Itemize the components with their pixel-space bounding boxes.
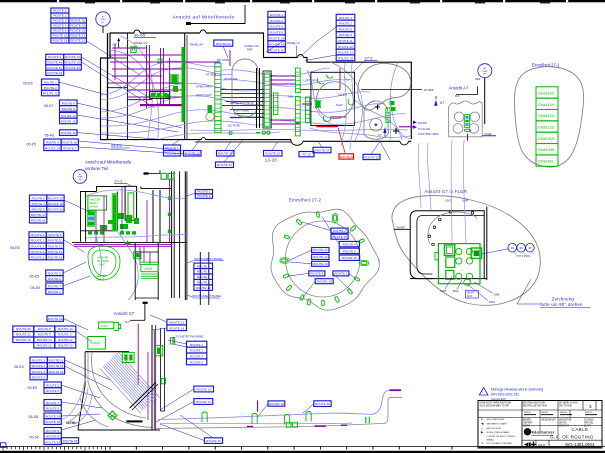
svg-text:ROUTE 18: ROUTE 18 [45,440,60,444]
svg-text:27-2: 27-2 [365,55,374,60]
svg-text:PANEL KP: PANEL KP [190,43,204,47]
svg-text:HOFTLIGHT: HOFTLIGHT [196,93,212,97]
svg-text:ROUTE 16: ROUTE 16 [61,131,76,135]
svg-text:ROUTE 23: ROUTE 23 [338,51,353,55]
svg-text:ROUTE 18: ROUTE 18 [269,48,284,52]
svg-text:Einzelheit 27-2: Einzelheit 27-2 [289,198,322,203]
svg-text:ROUTE 7: ROUTE 7 [48,284,61,288]
svg-text:ROUTE 19: ROUTE 19 [269,37,284,41]
svg-text:CHA7: CHA7 [101,324,109,328]
svg-text:ROUTE 10: ROUTE 10 [58,327,73,331]
svg-text:TO INSTRT PNL BRKE: TO INSTRT PNL BRKE [175,334,203,338]
svg-text:RELAY: RELAY [90,201,99,205]
svg-text:Ansicht auf Mittelkonsole: Ansicht auf Mittelkonsole [173,14,235,19]
svg-text:Ansicht C7: Ansicht C7 [114,311,135,316]
svg-text:STAR: STAR [77,176,83,179]
svg-text:ROUTE 5: ROUTE 5 [46,383,59,387]
svg-text:ROUTE 8: ROUTE 8 [62,101,75,105]
svg-text:40: 40 [528,246,532,250]
svg-text:06-E5: 06-E5 [31,286,41,290]
svg-text:TYP 6 PINS: TYP 6 PINS [516,254,530,258]
svg-text:ROUTE 5: ROUTE 5 [32,196,45,200]
svg-text:ROUTE 17: ROUTE 17 [58,333,73,337]
svg-text:ROUTE 1: ROUTE 1 [197,190,210,194]
svg-text:ROUTE 15: ROUTE 15 [65,61,80,65]
svg-text:ROUTE 4: ROUTE 4 [53,24,66,28]
svg-text:20417: 20417 [538,443,546,447]
svg-text:VB REF: VB REF [397,226,406,229]
svg-text:CABLE: CABLE [572,427,589,432]
svg-text:Cha1192: Cha1192 [538,90,555,95]
svg-text:ROUTE 99: ROUTE 99 [16,327,31,331]
svg-text:ROUTE 8: ROUTE 8 [46,141,59,145]
svg-text:ROUTE 4: ROUTE 4 [32,202,45,206]
svg-text:ROUTE 15: ROUTE 15 [218,152,233,156]
svg-text:06-D6: 06-D6 [29,415,39,419]
svg-text:!: ! [482,390,483,394]
svg-text:ZCHNGS: ZCHNGS [584,420,594,422]
svg-text:ROUTE 18: ROUTE 18 [338,45,353,49]
svg-text:ROUTE 13: ROUTE 13 [65,55,80,59]
svg-text:ROUTE 2: ROUTE 2 [190,349,203,353]
svg-text:ROUTE 1: ROUTE 1 [190,343,203,347]
svg-text:ROUTE 40: ROUTE 40 [48,208,63,212]
svg-text:ARTIKEL: ARTIKEL [584,422,594,425]
svg-text:HEATER: HEATER [96,274,106,278]
svg-text:ROUTE 13: ROUTE 13 [196,388,211,392]
svg-text:FLH: FLH [125,321,130,324]
svg-text:ROUTE 14: ROUTE 14 [45,414,60,418]
svg-text:ROUTE 2: ROUTE 2 [165,152,178,156]
svg-text:Cha1411: Cha1411 [538,159,555,164]
svg-text:WG-1381.0601: WG-1381.0601 [565,442,595,447]
svg-text:G.A. OF ROUTING: G.A. OF ROUTING [550,434,594,439]
svg-text:ROUTE 9: ROUTE 9 [38,333,51,337]
svg-text:ROUTE 9: ROUTE 9 [32,208,45,212]
svg-text:BESTEVLNETON NUR: BESTEVLNETON NUR [523,405,547,407]
svg-text:ROUTE 2: ROUTE 2 [53,14,66,18]
svg-text:REF NOTE ML: REF NOTE ML [487,428,502,430]
svg-text:ROUTE 64: ROUTE 64 [48,317,63,321]
svg-text:DIN-1502-0001-012: DIN-1502-0001-012 [491,392,519,396]
svg-text:BRAID): BRAID) [487,438,495,441]
svg-text:ROUTE 4: ROUTE 4 [339,33,352,37]
svg-text:DO STBD: DO STBD [217,58,229,62]
svg-text:ROUTE 22: ROUTE 22 [70,39,85,43]
svg-text:FLIR: FLIR [467,295,472,298]
svg-text:ROUTE 44: ROUTE 44 [47,71,62,75]
svg-text:27-1: 27-1 [114,179,123,184]
svg-text:MASTER: MASTER [98,256,109,260]
svg-text:ROUTE 3: ROUTE 3 [46,407,59,411]
svg-text:ROUTE 16: ROUTE 16 [185,152,200,156]
svg-text:34: 34 [511,246,515,250]
svg-text:ROUTE 7: ROUTE 7 [46,401,59,405]
svg-text:Cha1410: Cha1410 [538,136,555,141]
svg-text:WERKST: WERKST [559,425,569,427]
svg-text:INSTRUMENT PANEL: INSTRUMENT PANEL [194,257,223,261]
svg-text:ALLE WSSNAHMEN TO WF: ALLE WSSNAHMEN TO WF [480,404,510,407]
svg-text:ROUTE 6: ROUTE 6 [46,389,59,393]
svg-text:06-F2: 06-F2 [44,104,53,108]
svg-text:ROUTE 4: ROUTE 4 [32,376,45,380]
svg-text:ROUTE 1: ROUTE 1 [334,272,347,276]
svg-text:ROUTE 18: ROUTE 18 [48,202,63,206]
svg-text:ROUTE 8: ROUTE 8 [38,327,51,331]
svg-text:Montage Hinweise wird in Zeich: Montage Hinweise wird in Zeichnung [491,387,543,391]
svg-text:ROUTE 18: ROUTE 18 [364,155,379,159]
svg-text:FLIR: FLIR [336,103,343,107]
svg-text:Ansicht auf Mittelkonsole: Ansicht auf Mittelkonsole [85,160,132,165]
svg-text:ROUTE 8: ROUTE 8 [339,27,352,31]
svg-text:ROUTE 14: ROUTE 14 [196,400,211,404]
svg-text:ROUTE 16: ROUTE 16 [342,256,357,260]
svg-text:CONTRL OF SPEC CONTRL: CONTRL OF SPEC CONTRL [487,436,517,438]
svg-text:STAR: STAR [482,70,488,73]
svg-text:ANTER ROUTE W: ANTER ROUTE W [230,101,254,105]
svg-text:ROUTE 43: ROUTE 43 [31,213,46,217]
svg-text:ROUTE 4: ROUTE 4 [31,250,44,254]
svg-text:ROUTE 2: ROUTE 2 [44,86,57,90]
svg-text:ROUTE 42: ROUTE 42 [47,66,62,70]
svg-text:ROUTE 16: ROUTE 16 [48,256,63,260]
svg-text:STBD ARMT: STBD ARMT [196,85,212,89]
svg-text:COMMS: COMMS [230,116,241,120]
svg-text:ROUTE 18: ROUTE 18 [317,279,332,283]
svg-text:ROUTE 15: ROUTE 15 [70,24,85,28]
svg-text:W REF: W REF [484,133,492,136]
svg-text:BLOWER: BLOWER [98,259,109,263]
svg-text:ROUTE 5: ROUTE 5 [48,271,61,275]
svg-text:ROUTE 15: ROUTE 15 [49,364,64,368]
svg-text:ROUTE 34: ROUTE 34 [217,163,232,167]
svg-text:FLH: FLH [455,95,460,98]
svg-text:ROUTE 6: ROUTE 6 [48,277,61,281]
svg-text:vorderer Teil: vorderer Teil [85,166,108,171]
svg-text:ROUTE 16: ROUTE 16 [49,370,64,374]
svg-text:GEPRUF: GEPRUF [523,423,533,425]
svg-text:ROUTE 14: ROUTE 14 [45,146,60,150]
svg-text:ROUTE 16: ROUTE 16 [206,439,221,443]
svg-text:5068: 5068 [440,289,446,293]
svg-text:ROUTE 18: ROUTE 18 [53,39,68,43]
svg-text:REF: REF [476,78,481,81]
svg-text:ROUTE 12: ROUTE 12 [16,333,31,337]
svg-text:MILL/LINED SIDE: MILL/LINED SIDE [487,419,505,421]
svg-text:ROUTE 22: ROUTE 22 [313,248,328,252]
svg-text:ROUTE 1: ROUTE 1 [44,80,57,84]
svg-text:ROUTE 8: ROUTE 8 [310,272,323,276]
svg-text:ROUTE 16: ROUTE 16 [70,19,85,23]
svg-text:ROUTE 20: ROUTE 20 [65,66,80,70]
svg-text:ROUTE 14: ROUTE 14 [48,250,63,254]
svg-text:ROUTE 9: ROUTE 9 [48,233,61,237]
svg-text:GEZEICHNET: GEZEICHNET [541,420,556,422]
svg-text:05-F5: 05-F5 [27,143,36,147]
svg-text:ATTITUDE: ATTITUDE [224,77,238,81]
svg-text:PANEL CV: PANEL CV [134,41,148,45]
svg-text:5062: 5062 [453,289,459,293]
svg-text:W REF: W REF [424,88,434,92]
svg-text:ROUTE 22: ROUTE 22 [58,338,73,342]
svg-text:ROUTE 9: ROUTE 9 [197,275,210,279]
svg-text:05-E6: 05-E6 [23,82,33,86]
svg-text:15-02: 15-02 [144,267,152,271]
svg-text:INSTRUMENT PANEL: INSTRUMENT PANEL [193,294,222,298]
svg-text:ROUTE 3: ROUTE 3 [32,370,45,374]
svg-text:CHA15: CHA15 [96,278,105,282]
svg-text:ROUTE 10: ROUTE 10 [265,152,280,156]
svg-text:ROUTE 18: ROUTE 18 [63,439,78,443]
svg-text:ROUTE 2: ROUTE 2 [339,22,352,26]
svg-text:CHA7: CHA7 [99,263,106,267]
svg-text:PORT ARMT: PORT ARMT [234,109,251,113]
svg-text:bitte um 90° drehen: bitte um 90° drehen [541,302,584,307]
svg-text:ROUTE 9: ROUTE 9 [270,25,283,29]
svg-text:06-E5: 06-E5 [14,365,24,369]
svg-text:MASTER: MASTER [90,198,101,202]
svg-text:ROUTE 41: ROUTE 41 [31,219,46,223]
svg-text:ROUTE 1: ROUTE 1 [270,13,283,17]
svg-text:DC PORT: DC PORT [228,123,241,127]
svg-text:ROUTE 40: ROUTE 40 [47,61,62,65]
svg-text:ROUTE 10: ROUTE 10 [48,239,63,243]
svg-text:ROUTE 14: ROUTE 14 [169,326,184,330]
svg-text:5067: 5067 [445,198,451,202]
svg-text:05-E5: 05-E5 [30,275,40,279]
svg-text:DATUM: DATUM [585,411,592,414]
svg-text:DATUM: DATUM [541,411,548,414]
svg-text:ROUTE 1: ROUTE 1 [32,358,45,362]
svg-text:HOW KONT OHNE ANDTOSN: HOW KONT OHNE ANDTOSN [480,401,512,404]
svg-text:NT: NT [440,101,444,105]
svg-text:ROUTE 5: ROUTE 5 [31,256,44,260]
svg-text:WT CLR AND COM PNRL: WT CLR AND COM PNRL [487,442,513,445]
svg-text:ROUTE 11: ROUTE 11 [338,39,353,43]
svg-text:SEE PARTS CHART: SEE PARTS CHART [487,422,508,425]
svg-text:ROUTE 13: ROUTE 13 [169,321,184,325]
svg-text:GUIDE (TRUSS PANEL: GUIDE (TRUSS PANEL [487,431,511,434]
svg-text:A7: A7 [378,133,382,137]
svg-text:Ansicht G7 in FLGR: Ansicht G7 in FLGR [425,189,468,194]
svg-text:REF: REF [247,48,253,52]
svg-text:ROUTE 6: ROUTE 6 [270,31,283,35]
svg-text:ROUTE 10: ROUTE 10 [53,34,68,38]
svg-text:05-E5: 05-E5 [28,386,38,390]
svg-text:ROUTE 3: ROUTE 3 [190,355,203,359]
svg-text:ROUTE 3: ROUTE 3 [63,146,76,150]
svg-text:AT GEN: AT GEN [206,73,216,77]
svg-text:NORM: NORM [523,425,530,427]
svg-text:ROUTE 5: ROUTE 5 [197,264,210,268]
svg-text:PANEL CL: PANEL CL [287,41,301,45]
svg-text:ROUTE 4: ROUTE 4 [190,361,203,365]
svg-text:ROUTE 4: ROUTE 4 [197,281,210,285]
svg-text:ROUTE 18: ROUTE 18 [269,402,284,406]
svg-text:REF REF: REF REF [66,422,77,425]
svg-text:ROUTE 13: ROUTE 13 [49,358,64,362]
svg-text:ROUTE 9: ROUTE 9 [62,107,75,111]
svg-text:06-E6: 06-E6 [10,246,20,250]
svg-text:3: 3 [589,404,592,409]
svg-text:DATUM: DATUM [560,411,567,414]
svg-text:ROUTE 12: ROUTE 12 [313,255,328,259]
svg-text:ROUTE 5: ROUTE 5 [340,155,353,159]
svg-text:ROUTE 2: ROUTE 2 [333,229,346,233]
svg-text:CHA10: CHA10 [91,341,101,345]
svg-text:CHA19: CHA19 [90,205,99,209]
svg-text:DETAIL: DETAIL [559,422,568,425]
svg-text:ROUTE 2: ROUTE 2 [31,239,44,243]
svg-text:Zeichnung: Zeichnung [552,296,575,301]
svg-text:ROUTE 2: ROUTE 2 [197,194,210,198]
svg-text:ROUTE 19: ROUTE 19 [48,196,63,200]
svg-text:06-E6: 06-E6 [111,143,122,148]
svg-text:Cha1124: Cha1124 [538,102,555,107]
svg-text:ROUTE 21: ROUTE 21 [70,34,85,38]
svg-text:Cha1122: Cha1122 [538,124,555,129]
svg-text:ROUTE 6: ROUTE 6 [197,270,210,274]
svg-text:TO FLGR: TO FLGR [418,127,430,131]
svg-text:ROUTE 9: ROUTE 9 [48,55,61,59]
svg-text:CONTROL ARM: CONTROL ARM [418,132,439,136]
svg-text:5084: 5084 [489,300,495,304]
svg-text:13-20: 13-20 [265,158,278,163]
svg-text:ROUTE 1: ROUTE 1 [339,16,352,20]
svg-text:ROUTE 8: ROUTE 8 [46,435,59,439]
svg-text:ROUTE 12: ROUTE 12 [196,286,211,290]
svg-text:ROUTE 14: ROUTE 14 [269,42,284,46]
svg-text:ROUTE 1: ROUTE 1 [53,9,66,13]
svg-text:ROUTE 24: ROUTE 24 [315,149,330,153]
svg-text:ROUTE 24: ROUTE 24 [315,402,330,406]
svg-text:05-5F: 05-5F [30,436,40,440]
svg-text:SICHERH CLASS: SICHERH CLASS [559,401,578,404]
svg-text:Cha1123: Cha1123 [538,113,555,118]
svg-text:06-F6: 06-F6 [45,134,54,138]
svg-text:ROUTE 13: ROUTE 13 [37,344,52,348]
svg-text:RT 10: RT 10 [302,153,310,157]
svg-text:DIN TO RAD: DIN TO RAD [559,404,573,407]
svg-text:ROUTE 16: ROUTE 16 [313,262,328,266]
svg-text:ROUTE 19: ROUTE 19 [338,56,353,60]
svg-text:JOE: JOE [288,94,294,98]
svg-text:ROUTE 18: ROUTE 18 [45,420,60,424]
svg-text:ROUTE 2: ROUTE 2 [48,290,61,294]
svg-text:5088: 5088 [494,292,500,296]
svg-text:ROUTE 22: ROUTE 22 [58,344,73,348]
svg-text:ROUTE 4: ROUTE 4 [343,243,356,247]
svg-text:BEARB: BEARB [523,419,531,422]
svg-text:DATUM: DATUM [524,411,531,414]
svg-text:ROUTE 22: ROUTE 22 [216,42,231,46]
svg-text:ROUTE 3: ROUTE 3 [53,19,66,23]
svg-text:ROUTE 13: ROUTE 13 [61,119,76,123]
svg-text:ROUTE 18: ROUTE 18 [62,141,77,145]
svg-text:ROUTE 1: ROUTE 1 [31,233,44,237]
svg-text:Ansicht A7: Ansicht A7 [449,86,469,91]
svg-text:ROUTE 6: ROUTE 6 [343,249,356,253]
svg-text:●: ● [481,417,483,421]
svg-text:ROUTE 3: ROUTE 3 [31,244,44,248]
svg-text:5069: 5069 [462,198,468,202]
svg-text:ROUTE 2: ROUTE 2 [32,364,45,368]
svg-text:DOWN: DOWN [418,121,427,125]
svg-text:Cha1409: Cha1409 [538,147,555,152]
svg-text:ROUTE 5: ROUTE 5 [270,19,283,23]
svg-text:LEFT/GPS: LEFT/GPS [304,79,318,83]
svg-text:STAR: STAR [100,18,106,21]
svg-text:MASSSTAB: MASSSTAB [559,419,572,422]
svg-text:ROUTE 8: ROUTE 8 [53,29,66,33]
svg-text:ROUTE 21: ROUTE 21 [43,92,58,96]
svg-text:35: 35 [519,246,523,250]
svg-text:ERSTBAUSNIT WOH: ERSTBAUSNIT WOH [523,401,546,404]
svg-text:ROUTE 12: ROUTE 12 [48,244,63,248]
svg-text:ROUTE 10: ROUTE 10 [16,338,31,342]
svg-text:ROUTE 19: ROUTE 19 [70,29,85,33]
svg-text:ROUTE 13: ROUTE 13 [37,338,52,342]
svg-text:ROUTE 14: ROUTE 14 [61,114,76,118]
svg-text:ROUTE 1: ROUTE 1 [165,146,178,150]
svg-text:ROUTE 9: ROUTE 9 [46,429,59,433]
